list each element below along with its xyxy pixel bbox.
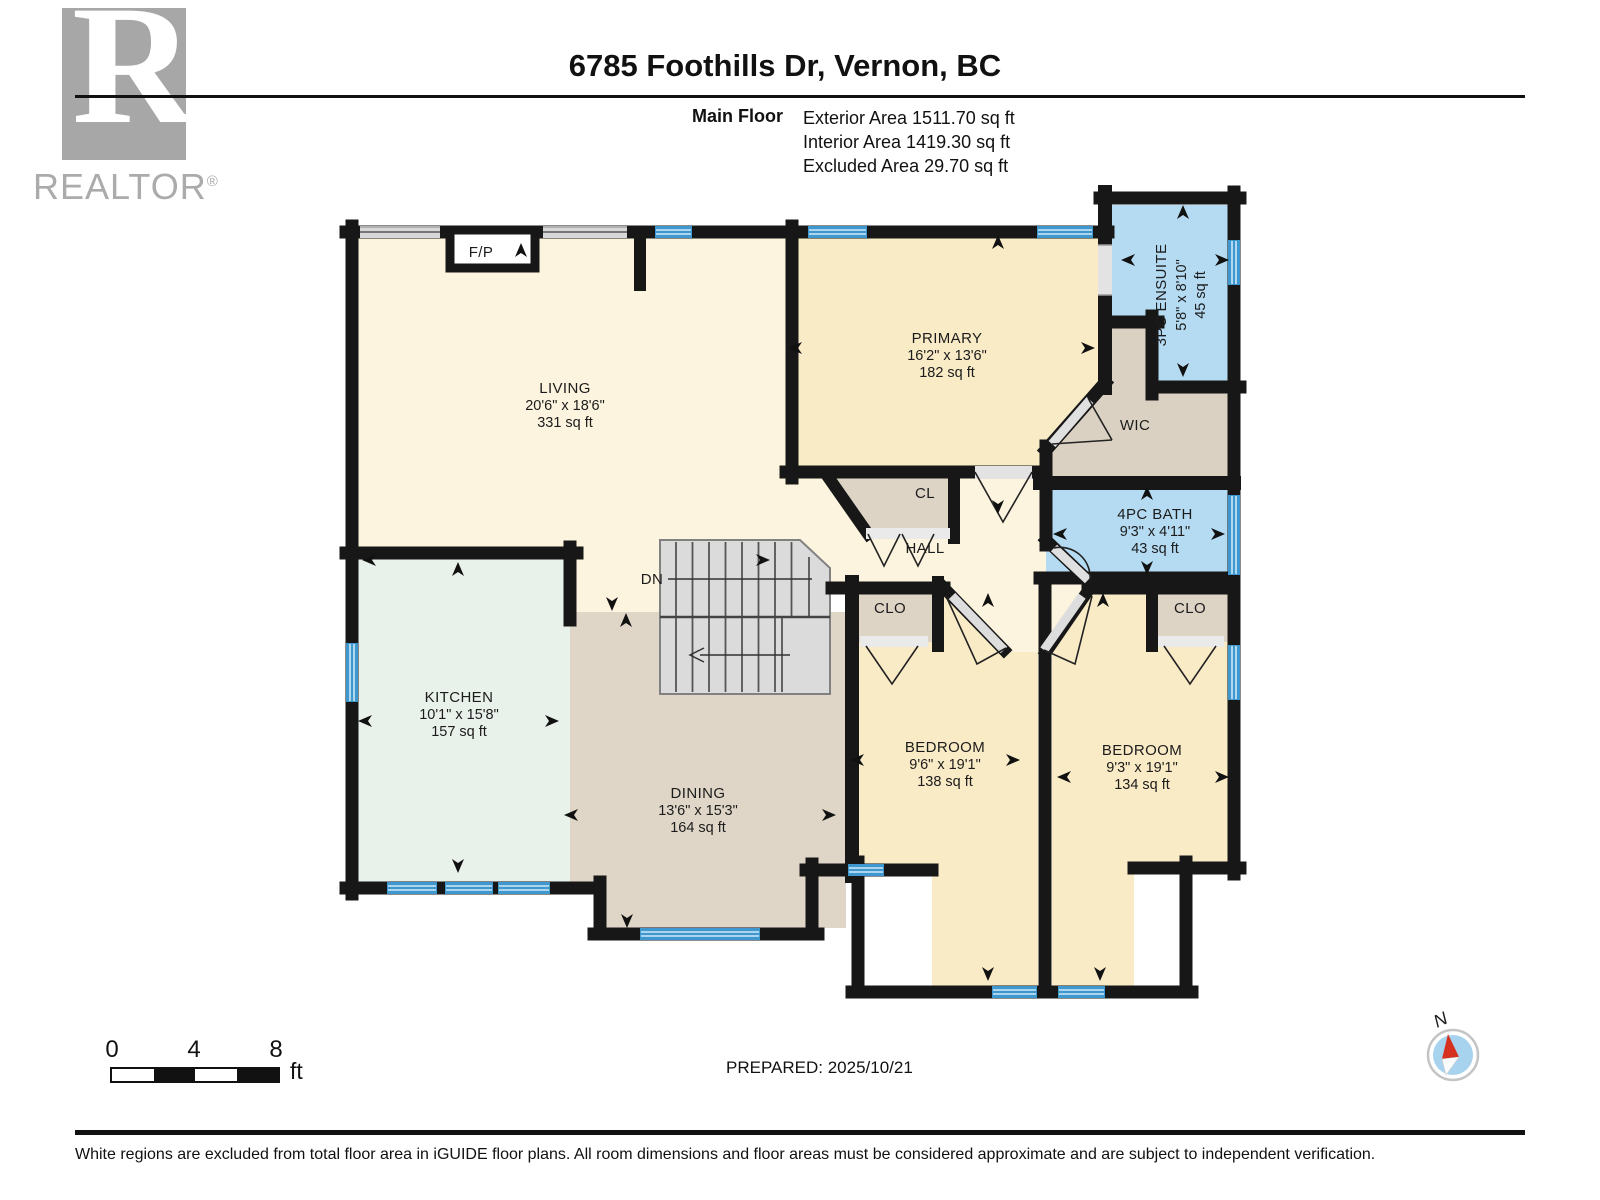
realtor-logo: R bbox=[62, 8, 186, 160]
primary-label: PRIMARY bbox=[912, 330, 983, 347]
living-dims: 20'6" x 18'6" bbox=[525, 398, 605, 414]
ensuite-area: 45 sq ft bbox=[1193, 271, 1209, 319]
page-title: 6785 Foothills Dr, Vernon, BC bbox=[0, 48, 1570, 84]
bedroom-left-area: 138 sq ft bbox=[917, 774, 973, 790]
window bbox=[848, 864, 884, 876]
window bbox=[992, 986, 1037, 998]
stairs bbox=[660, 540, 830, 694]
scale-tick-4: 4 bbox=[187, 1036, 200, 1064]
bedroom-left-dims: 9'6" x 19'1" bbox=[909, 757, 980, 773]
bay-right-fill bbox=[1052, 868, 1134, 988]
compass-north-label: N bbox=[1430, 1008, 1451, 1032]
window bbox=[640, 928, 760, 940]
window bbox=[655, 226, 692, 238]
prepared-date: PREPARED: 2025/10/21 bbox=[726, 1058, 913, 1078]
cl-label: CL bbox=[915, 485, 935, 502]
clo-left-door-opening bbox=[860, 636, 928, 647]
scale-tick-0: 0 bbox=[105, 1036, 118, 1064]
realtor-logo-wordmark: REALTOR® bbox=[33, 166, 219, 208]
living-area: 331 sq ft bbox=[537, 415, 593, 431]
scale-tick-8: 8 bbox=[269, 1036, 282, 1064]
kitchen-dims: 10'1" x 15'8" bbox=[419, 707, 499, 723]
bedroom-left-label: BEDROOM bbox=[905, 739, 985, 756]
dining-area: 164 sq ft bbox=[670, 820, 726, 836]
ensuite-door-opening bbox=[1098, 245, 1112, 295]
primary-door-opening bbox=[975, 466, 1032, 479]
bedroom-right-label: BEDROOM bbox=[1102, 742, 1182, 759]
bath-dims: 9'3" x 4'11" bbox=[1120, 524, 1190, 540]
title-divider bbox=[75, 95, 1525, 98]
fireplace-label: F/P bbox=[469, 244, 494, 261]
window bbox=[387, 882, 437, 894]
cl-door-opening bbox=[866, 528, 950, 539]
kitchen-label: KITCHEN bbox=[425, 689, 494, 706]
primary-area: 182 sq ft bbox=[919, 365, 975, 381]
primary-dims: 16'2" x 13'6" bbox=[907, 348, 987, 364]
clo-right-label: CLO bbox=[1174, 600, 1206, 617]
window bbox=[1228, 645, 1240, 700]
clo-left-label: CLO bbox=[874, 600, 906, 617]
ensuite-label: 3PC ENSUITE bbox=[1153, 244, 1170, 347]
window bbox=[346, 643, 358, 702]
bedroom-right-area: 134 sq ft bbox=[1114, 777, 1170, 793]
scale-unit: ft bbox=[290, 1058, 303, 1085]
window bbox=[498, 882, 550, 894]
registered-mark: ® bbox=[207, 173, 219, 190]
compass: N bbox=[1396, 998, 1506, 1094]
window bbox=[1228, 495, 1240, 575]
dining-label: DINING bbox=[671, 785, 726, 802]
window bbox=[1228, 240, 1240, 285]
hall-label: HALL bbox=[905, 540, 944, 557]
bath-area: 43 sq ft bbox=[1131, 541, 1179, 557]
window bbox=[1058, 986, 1105, 998]
footer-divider bbox=[75, 1130, 1525, 1135]
scale-bar bbox=[110, 1067, 280, 1083]
wic-label: WIC bbox=[1120, 417, 1150, 434]
clo-right-door-opening bbox=[1158, 636, 1224, 647]
bath-label: 4PC BATH bbox=[1117, 506, 1192, 523]
kitchen-area: 157 sq ft bbox=[431, 724, 487, 740]
bedroom-right-dims: 9'3" x 19'1" bbox=[1106, 760, 1177, 776]
floor-plan: F/P LIVING 20'6" x 18'6" 331 sq ft PRIMA… bbox=[0, 0, 1600, 1200]
living-label: LIVING bbox=[539, 380, 591, 397]
ensuite-dims: 5'8" x 8'10" bbox=[1174, 259, 1190, 330]
window bbox=[1037, 226, 1093, 238]
disclaimer-text: White regions are excluded from total fl… bbox=[75, 1146, 1525, 1164]
window bbox=[445, 882, 493, 894]
stairs-dn-label: DN bbox=[641, 571, 663, 588]
window bbox=[808, 226, 867, 238]
dining-dims: 13'6" x 15'3" bbox=[658, 803, 738, 819]
